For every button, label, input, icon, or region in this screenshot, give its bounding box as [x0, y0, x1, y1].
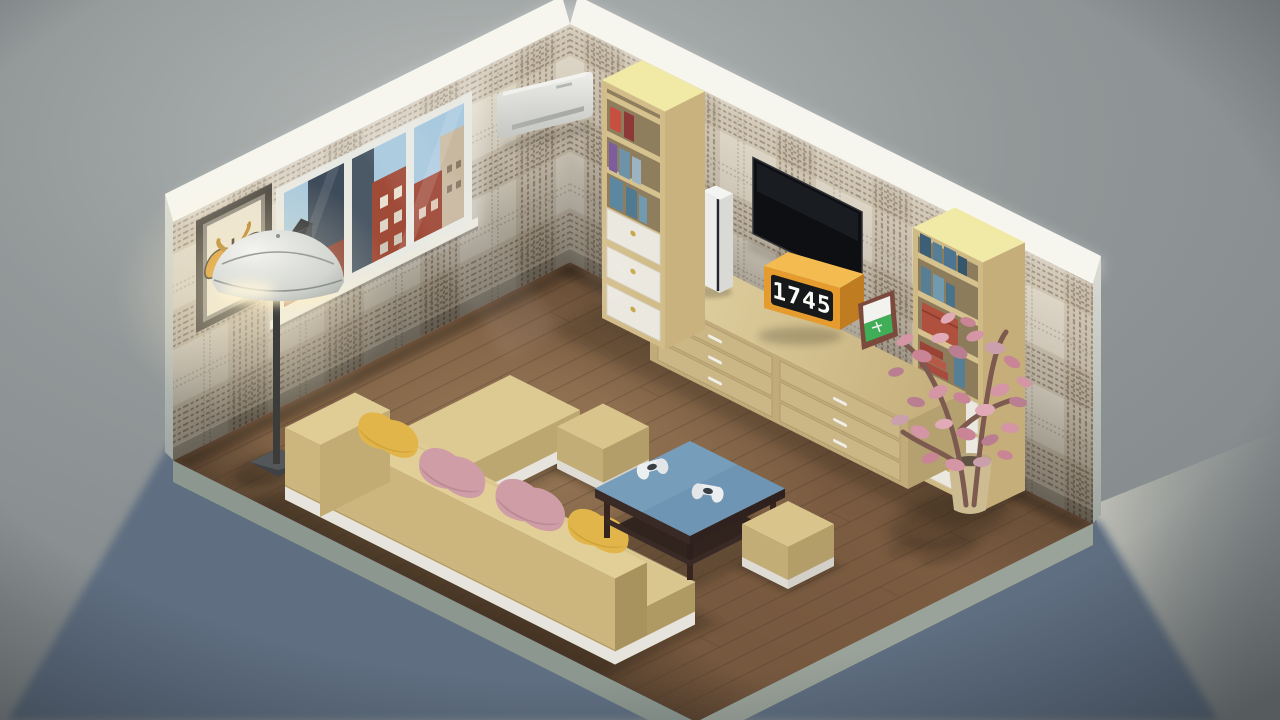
scene-canvas: 1745	[0, 0, 1280, 720]
vignette	[0, 0, 1280, 720]
isometric-room-scene: 1745	[0, 0, 1280, 720]
